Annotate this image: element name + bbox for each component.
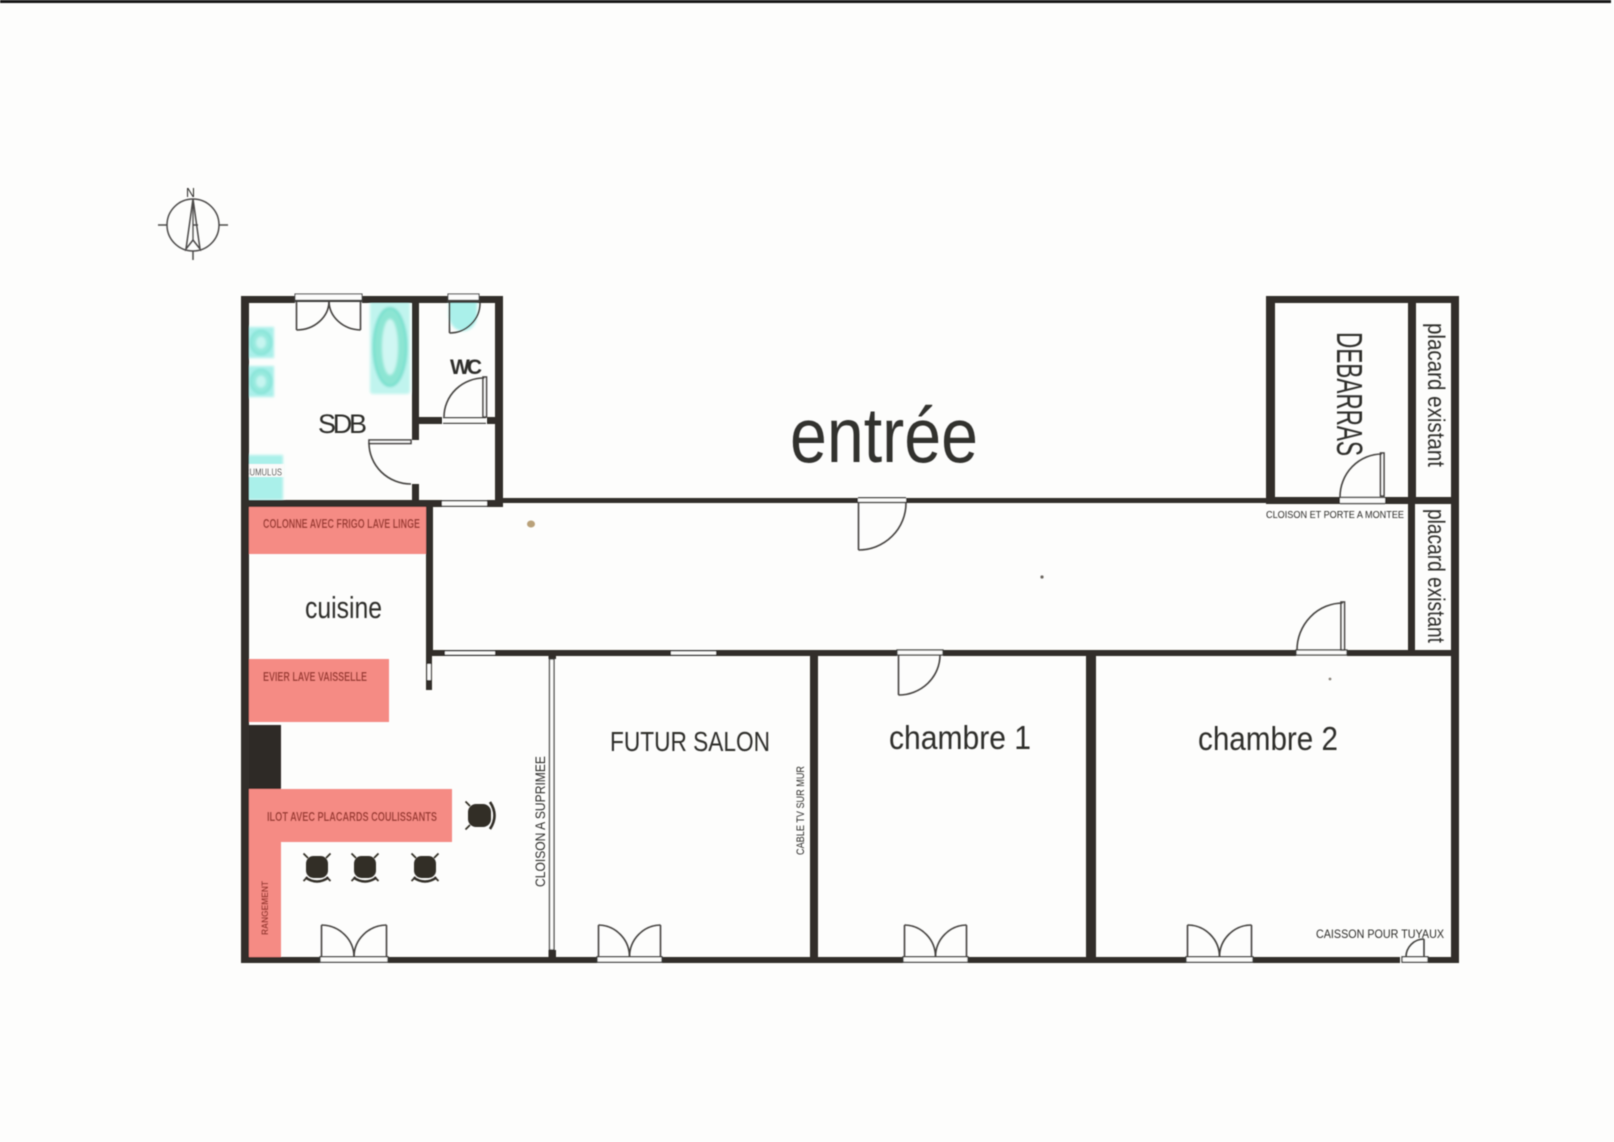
svg-text:ILOT AVEC PLACARDS COULISSANTS: ILOT AVEC PLACARDS COULISSANTS xyxy=(267,810,437,824)
svg-text:RANGEMENT: RANGEMENT xyxy=(260,881,271,935)
svg-text:EVIER LAVE VAISSELLE: EVIER LAVE VAISSELLE xyxy=(263,670,367,684)
svg-text:CUMULUS: CUMULUS xyxy=(244,468,282,479)
svg-text:CABLE TV SUR MUR: CABLE TV SUR MUR xyxy=(795,766,807,855)
svg-text:chambre 2: chambre 2 xyxy=(1198,720,1338,757)
svg-text:CLOISON A SUPRIMEE: CLOISON A SUPRIMEE xyxy=(532,756,548,887)
svg-text:N: N xyxy=(186,186,195,200)
svg-text:WC: WC xyxy=(450,356,482,379)
svg-text:cuisine: cuisine xyxy=(305,590,382,625)
svg-text:entrée: entrée xyxy=(790,391,978,479)
svg-text:placard existant: placard existant xyxy=(1422,323,1449,467)
svg-text:FUTUR SALON: FUTUR SALON xyxy=(610,726,770,757)
svg-text:CAISSON POUR TUYAUX: CAISSON POUR TUYAUX xyxy=(1316,927,1444,941)
svg-text:COLONNE AVEC FRIGO LAVE LINGE: COLONNE AVEC FRIGO LAVE LINGE xyxy=(263,517,420,531)
svg-text:CLOISON ET PORTE A MONTEE: CLOISON ET PORTE A MONTEE xyxy=(1266,509,1404,521)
svg-text:DEBARRAS: DEBARRAS xyxy=(1329,332,1370,456)
svg-text:chambre 1: chambre 1 xyxy=(889,719,1031,756)
svg-text:placard existant: placard existant xyxy=(1422,509,1449,643)
svg-text:SDB: SDB xyxy=(318,409,367,439)
